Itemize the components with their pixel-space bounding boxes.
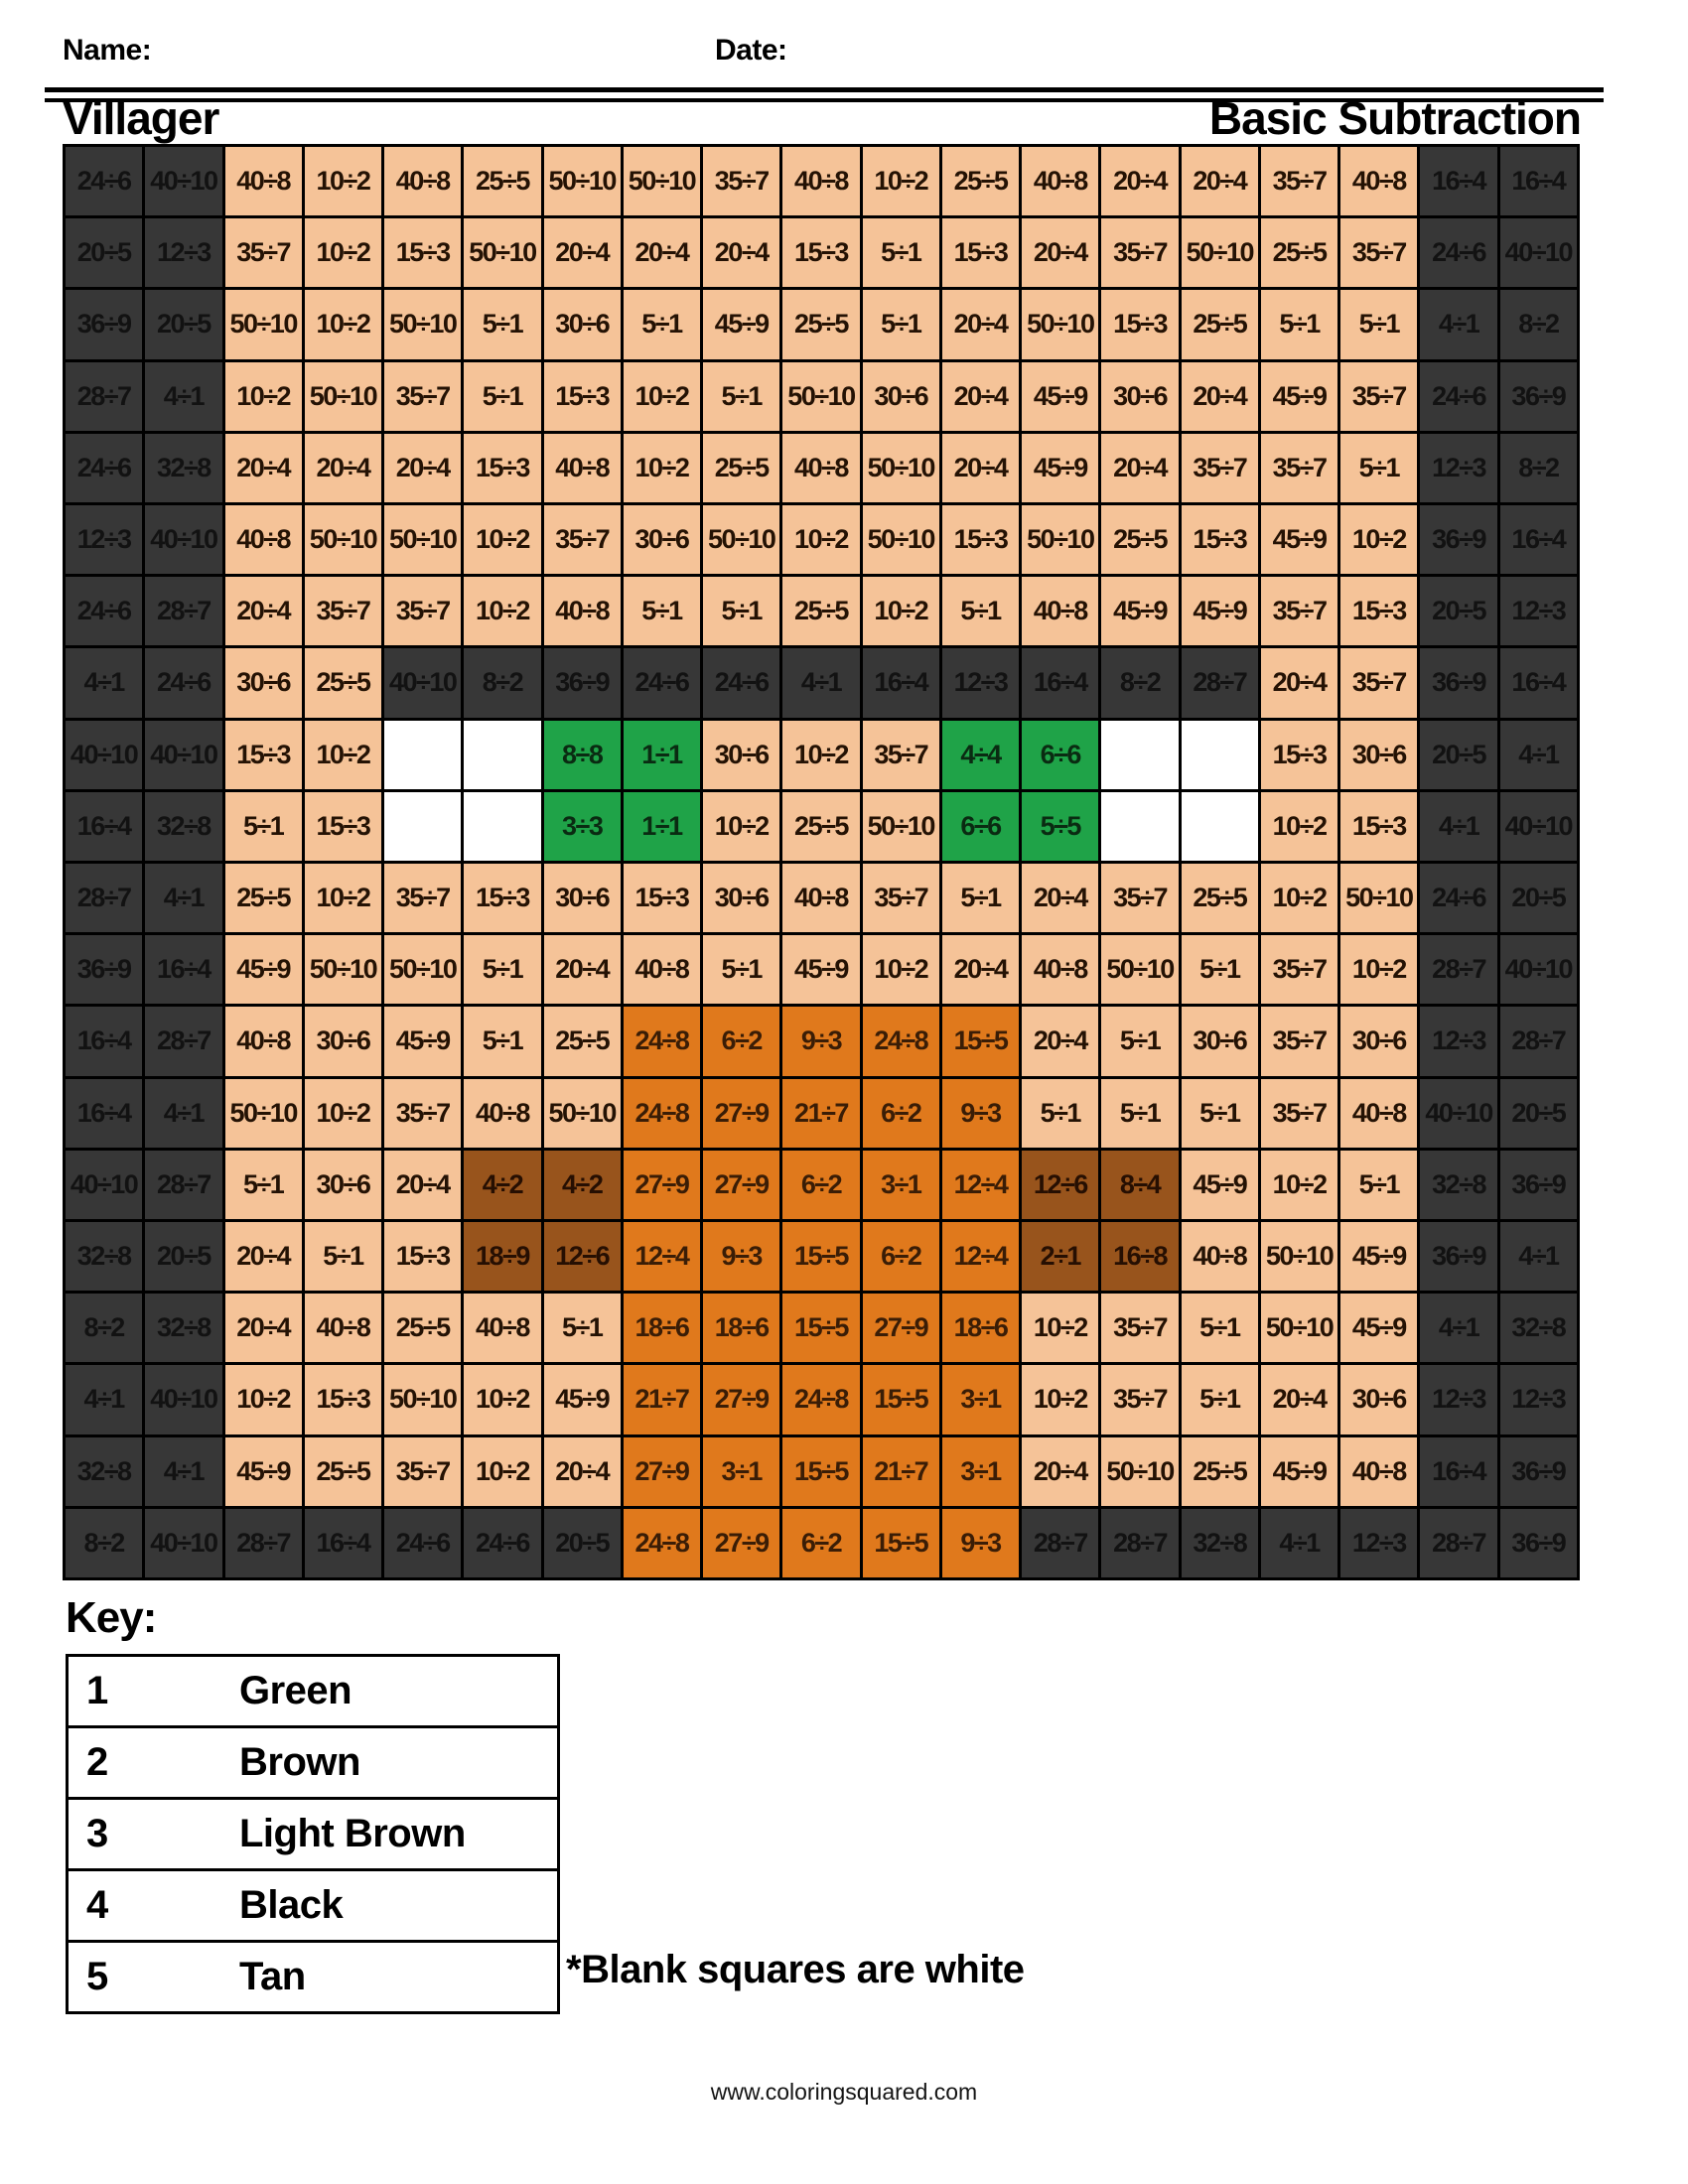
grid-cell: 15÷3: [464, 434, 540, 502]
footer-url: www.coloringsquared.com: [0, 2079, 1688, 2106]
grid-cell: 50÷10: [624, 147, 700, 215]
grid-cell: 10÷2: [464, 1437, 540, 1506]
grid-cell: 30÷6: [863, 362, 939, 431]
grid-cell: 20÷4: [1022, 1007, 1098, 1075]
grid-cell: 30÷6: [703, 864, 779, 932]
grid-cell: 18÷6: [942, 1294, 1019, 1362]
grid-cell: 30÷6: [624, 505, 700, 574]
grid-cell: 35÷7: [1101, 864, 1178, 932]
grid-cell: 30÷6: [1101, 362, 1178, 431]
grid-cell: 16÷4: [1420, 147, 1496, 215]
grid-cell: 16÷4: [66, 792, 142, 861]
grid-cell: 20÷4: [1101, 147, 1178, 215]
grid-cell: 30÷6: [1340, 1365, 1417, 1433]
grid-cell: 35÷7: [1261, 1079, 1337, 1148]
grid-cell: 45÷9: [1261, 505, 1337, 574]
grid-cell: 40÷8: [225, 147, 302, 215]
key-row: 2 Brown: [69, 1728, 557, 1800]
grid-cell: 8÷2: [464, 648, 540, 717]
grid-cell: 32÷8: [1500, 1294, 1577, 1362]
puzzle-grid: 24÷640÷1040÷810÷240÷825÷550÷1050÷1035÷74…: [63, 144, 1580, 1580]
grid-cell: 20÷4: [942, 935, 1019, 1004]
grid-cell: 30÷6: [305, 1151, 381, 1219]
grid-cell: 4÷2: [544, 1151, 621, 1219]
grid-cell: 40÷10: [66, 721, 142, 789]
grid-cell: 40÷8: [305, 1294, 381, 1362]
grid-cell: 16÷4: [1500, 147, 1577, 215]
grid-cell: 40÷10: [145, 721, 221, 789]
grid-cell: 40÷10: [145, 1509, 221, 1577]
grid-cell: 5÷1: [624, 290, 700, 358]
grid-cell: 35÷7: [863, 864, 939, 932]
grid-cell: 10÷2: [1340, 505, 1417, 574]
grid-cell: 5÷1: [703, 577, 779, 645]
grid-cell: 24÷8: [624, 1079, 700, 1148]
grid-cell: 20÷4: [225, 1294, 302, 1362]
key-number: 4: [69, 1883, 239, 1928]
grid-cell: 24÷8: [782, 1365, 859, 1433]
grid-cell: 15÷3: [464, 864, 540, 932]
grid-cell: 15÷3: [1101, 290, 1178, 358]
grid-cell: 25÷5: [782, 577, 859, 645]
grid-cell: 15÷3: [1261, 721, 1337, 789]
grid-cell: 16÷4: [1420, 1437, 1496, 1506]
grid-cell: 28÷7: [1420, 935, 1496, 1004]
grid-cell: 4÷1: [145, 1079, 221, 1148]
grid-cell: 30÷6: [1340, 1007, 1417, 1075]
grid-cell: 35÷7: [384, 1437, 461, 1506]
grid-cell: 12÷3: [1500, 1365, 1577, 1433]
grid-cell: 21÷7: [782, 1079, 859, 1148]
grid-cell: 5÷1: [942, 577, 1019, 645]
grid-cell: 40÷8: [1340, 1437, 1417, 1506]
grid-cell: [384, 792, 461, 861]
grid-cell: 45÷9: [1182, 1151, 1258, 1219]
grid-cell: 4÷2: [464, 1151, 540, 1219]
grid-cell: 5÷1: [1022, 1079, 1098, 1148]
grid-cell: 12÷6: [544, 1222, 621, 1291]
grid-cell: 24÷8: [624, 1007, 700, 1075]
grid-cell: 25÷5: [544, 1007, 621, 1075]
grid-cell: 15÷3: [305, 792, 381, 861]
grid-cell: 12÷4: [624, 1222, 700, 1291]
key-color-name: Brown: [239, 1740, 360, 1785]
grid-cell: 15÷3: [1340, 792, 1417, 861]
grid-cell: 3÷1: [863, 1151, 939, 1219]
grid-cell: 25÷5: [1182, 864, 1258, 932]
grid-cell: 36÷9: [1500, 362, 1577, 431]
grid-cell: 24÷6: [66, 434, 142, 502]
grid-cell: 25÷5: [703, 434, 779, 502]
grid-cell: 45÷9: [1340, 1222, 1417, 1291]
grid-cell: [1182, 721, 1258, 789]
grid-cell: 36÷9: [66, 935, 142, 1004]
grid-cell: 20÷4: [225, 577, 302, 645]
grid-cell: 10÷2: [305, 864, 381, 932]
grid-cell: 24÷6: [464, 1509, 540, 1577]
grid-cell: 28÷7: [145, 577, 221, 645]
grid-cell: 30÷6: [305, 1007, 381, 1075]
grid-cell: 10÷2: [624, 434, 700, 502]
grid-cell: 20÷4: [624, 218, 700, 287]
grid-cell: 20÷4: [703, 218, 779, 287]
grid-cell: 8÷4: [1101, 1151, 1178, 1219]
grid-cell: 1÷1: [624, 792, 700, 861]
grid-cell: 5÷1: [1182, 1294, 1258, 1362]
grid-cell: 15÷3: [305, 1365, 381, 1433]
grid-cell: 4÷1: [1420, 1294, 1496, 1362]
grid-cell: 40÷10: [66, 1151, 142, 1219]
grid-cell: 12÷4: [942, 1222, 1019, 1291]
grid-cell: 20÷4: [1022, 1437, 1098, 1506]
grid-cell: 15÷5: [782, 1222, 859, 1291]
grid-cell: 20÷4: [942, 290, 1019, 358]
grid-cell: 20÷5: [1420, 721, 1496, 789]
grid-cell: 50÷10: [1101, 1437, 1178, 1506]
grid-cell: 5÷1: [464, 1007, 540, 1075]
grid-cell: 45÷9: [1261, 1437, 1337, 1506]
key-number: 2: [69, 1740, 239, 1785]
grid-cell: 50÷10: [225, 1079, 302, 1148]
grid-cell: 5÷1: [305, 1222, 381, 1291]
grid-cell: 35÷7: [1101, 1365, 1178, 1433]
grid-cell: 4÷1: [1500, 1222, 1577, 1291]
grid-cell: 50÷10: [703, 505, 779, 574]
grid-cell: 10÷2: [225, 1365, 302, 1433]
grid-cell: 35÷7: [1261, 434, 1337, 502]
grid-cell: 35÷7: [384, 362, 461, 431]
grid-cell: 2÷1: [1022, 1222, 1098, 1291]
grid-cell: 40÷8: [624, 935, 700, 1004]
grid-cell: 21÷7: [863, 1437, 939, 1506]
grid-cell: 10÷2: [225, 362, 302, 431]
grid-cell: 6÷2: [782, 1509, 859, 1577]
key-table: 1 Green 2 Brown 3 Light Brown 4 Black 5 …: [66, 1654, 560, 2014]
grid-cell: 20÷4: [1022, 864, 1098, 932]
grid-cell: 50÷10: [305, 935, 381, 1004]
grid-cell: 1÷1: [624, 721, 700, 789]
grid-cell: 12÷3: [1420, 1365, 1496, 1433]
grid-cell: 35÷7: [1261, 1007, 1337, 1075]
grid-cell: 40÷8: [782, 434, 859, 502]
grid-cell: 35÷7: [1182, 434, 1258, 502]
grid-cell: 5÷1: [1182, 1365, 1258, 1433]
grid-cell: 4÷1: [145, 1437, 221, 1506]
grid-cell: 45÷9: [225, 935, 302, 1004]
grid-cell: 6÷2: [703, 1007, 779, 1075]
grid-cell: 50÷10: [863, 505, 939, 574]
grid-cell: 40÷10: [1500, 792, 1577, 861]
grid-cell: 30÷6: [544, 864, 621, 932]
grid-cell: 10÷2: [703, 792, 779, 861]
grid-cell: 35÷7: [1261, 935, 1337, 1004]
grid-cell: 45÷9: [1340, 1294, 1417, 1362]
grid-cell: 20÷4: [384, 434, 461, 502]
grid-cell: 24÷6: [66, 577, 142, 645]
grid-cell: 8÷8: [544, 721, 621, 789]
key-number: 5: [69, 1955, 239, 1999]
grid-cell: 10÷2: [305, 1079, 381, 1148]
grid-cell: 15÷3: [782, 218, 859, 287]
key-number: 1: [69, 1669, 239, 1713]
key-number: 3: [69, 1812, 239, 1856]
grid-cell: 15÷3: [384, 1222, 461, 1291]
grid-cell: [1101, 721, 1178, 789]
grid-cell: 10÷2: [464, 505, 540, 574]
date-label: Date:: [715, 34, 787, 68]
grid-cell: 5÷1: [464, 290, 540, 358]
grid-cell: 30÷6: [1340, 721, 1417, 789]
grid-cell: 9÷3: [942, 1079, 1019, 1148]
grid-cell: 40÷8: [1182, 1222, 1258, 1291]
grid-cell: 6÷2: [863, 1079, 939, 1148]
grid-cell: 10÷2: [464, 577, 540, 645]
grid-cell: 4÷1: [145, 864, 221, 932]
grid-cell: 28÷7: [145, 1151, 221, 1219]
grid-cell: 10÷2: [1022, 1365, 1098, 1433]
grid-cell: 45÷9: [782, 935, 859, 1004]
grid-cell: 50÷10: [863, 434, 939, 502]
grid-cell: 16÷8: [1101, 1222, 1178, 1291]
grid-cell: 50÷10: [1022, 290, 1098, 358]
grid-cell: 9÷3: [703, 1222, 779, 1291]
grid-cell: 40÷8: [544, 577, 621, 645]
grid-cell: 3÷3: [544, 792, 621, 861]
page-subtitle: Basic Subtraction: [1209, 95, 1581, 141]
grid-cell: 28÷7: [1182, 648, 1258, 717]
grid-cell: 20÷4: [1022, 218, 1098, 287]
grid-cell: 32÷8: [145, 1294, 221, 1362]
grid-cell: 10÷2: [1261, 792, 1337, 861]
grid-cell: 40÷8: [225, 505, 302, 574]
grid-cell: 35÷7: [1101, 1294, 1178, 1362]
grid-cell: 5÷1: [1340, 434, 1417, 502]
grid-cell: 8÷2: [1500, 434, 1577, 502]
grid-cell: 35÷7: [544, 505, 621, 574]
grid-cell: [1182, 792, 1258, 861]
grid-cell: 5÷1: [703, 362, 779, 431]
grid-cell: 4÷1: [66, 648, 142, 717]
grid-cell: 20÷5: [1420, 577, 1496, 645]
grid-cell: 21÷7: [624, 1365, 700, 1433]
grid-cell: 10÷2: [863, 935, 939, 1004]
grid-cell: 5÷1: [225, 1151, 302, 1219]
grid-cell: 10÷2: [464, 1365, 540, 1433]
grid-cell: 50÷10: [544, 147, 621, 215]
grid-cell: 4÷1: [782, 648, 859, 717]
grid-cell: 15÷5: [782, 1294, 859, 1362]
grid-cell: 5÷1: [1101, 1079, 1178, 1148]
grid-cell: 45÷9: [1022, 362, 1098, 431]
grid-cell: 20÷4: [1261, 1365, 1337, 1433]
grid-cell: 25÷5: [782, 290, 859, 358]
grid-cell: 20÷4: [942, 434, 1019, 502]
grid-cell: 40÷8: [384, 147, 461, 215]
grid-cell: 25÷5: [1101, 505, 1178, 574]
grid-cell: 15÷3: [942, 505, 1019, 574]
grid-cell: 10÷2: [863, 147, 939, 215]
grid-cell: 20÷4: [1101, 434, 1178, 502]
grid-cell: 18÷9: [464, 1222, 540, 1291]
grid-cell: 9÷3: [782, 1007, 859, 1075]
grid-cell: 32÷8: [66, 1222, 142, 1291]
grid-cell: 36÷9: [1500, 1151, 1577, 1219]
grid-cell: [384, 721, 461, 789]
grid-cell: 5÷1: [1101, 1007, 1178, 1075]
grid-cell: 20÷4: [225, 1222, 302, 1291]
grid-cell: 5÷1: [1340, 1151, 1417, 1219]
grid-cell: 25÷5: [305, 648, 381, 717]
grid-cell: 5÷1: [1261, 290, 1337, 358]
key-row: 5 Tan: [69, 1943, 557, 2011]
grid-cell: 4÷1: [1500, 721, 1577, 789]
grid-cell: 5÷1: [464, 362, 540, 431]
grid-cell: 3÷1: [942, 1365, 1019, 1433]
grid-cell: 28÷7: [66, 864, 142, 932]
grid-cell: 12÷3: [145, 218, 221, 287]
grid-cell: 50÷10: [384, 1365, 461, 1433]
grid-cell: 20÷5: [1500, 1079, 1577, 1148]
grid-cell: 35÷7: [225, 218, 302, 287]
grid-cell: 50÷10: [1022, 505, 1098, 574]
grid-cell: 40÷8: [464, 1079, 540, 1148]
grid-cell: 50÷10: [1182, 218, 1258, 287]
grid-cell: 27÷9: [863, 1294, 939, 1362]
grid-cell: 4÷1: [1261, 1509, 1337, 1577]
grid-cell: 40÷8: [1340, 1079, 1417, 1148]
grid-cell: 16÷4: [863, 648, 939, 717]
grid-cell: 27÷9: [703, 1079, 779, 1148]
grid-cell: 40÷8: [225, 1007, 302, 1075]
grid-cell: 10÷2: [1261, 864, 1337, 932]
grid-cell: 25÷5: [305, 1437, 381, 1506]
grid-cell: 36÷9: [1420, 1222, 1496, 1291]
grid-cell: 10÷2: [305, 218, 381, 287]
grid-cell: 28÷7: [1022, 1509, 1098, 1577]
grid-cell: 45÷9: [1022, 434, 1098, 502]
grid-cell: 20÷4: [544, 935, 621, 1004]
grid-cell: 15÷3: [1182, 505, 1258, 574]
grid-cell: 32÷8: [145, 792, 221, 861]
grid-cell: 30÷6: [1182, 1007, 1258, 1075]
grid-cell: 12÷6: [1022, 1151, 1098, 1219]
grid-cell: 45÷9: [703, 290, 779, 358]
grid-cell: 10÷2: [305, 147, 381, 215]
grid-cell: 45÷9: [1261, 362, 1337, 431]
grid-cell: 40÷8: [464, 1294, 540, 1362]
grid-cell: 8÷2: [1101, 648, 1178, 717]
grid-cell: 18÷6: [624, 1294, 700, 1362]
grid-cell: 35÷7: [1261, 147, 1337, 215]
page-title: Villager: [63, 95, 218, 141]
grid-cell: 40÷8: [782, 147, 859, 215]
grid-cell: 10÷2: [1022, 1294, 1098, 1362]
grid-cell: 35÷7: [384, 864, 461, 932]
grid-cell: 6÷6: [1022, 721, 1098, 789]
grid-cell: 50÷10: [782, 362, 859, 431]
grid-cell: 50÷10: [1261, 1222, 1337, 1291]
grid-cell: 35÷7: [863, 721, 939, 789]
grid-cell: 15÷3: [1340, 577, 1417, 645]
grid-cell: 50÷10: [225, 290, 302, 358]
grid-cell: 40÷8: [782, 864, 859, 932]
grid-cell: 35÷7: [1340, 218, 1417, 287]
grid-cell: 15÷3: [942, 218, 1019, 287]
grid-cell: 24÷6: [703, 648, 779, 717]
grid-cell: 35÷7: [1340, 362, 1417, 431]
grid-cell: 16÷4: [1022, 648, 1098, 717]
grid-cell: 24÷6: [384, 1509, 461, 1577]
grid-cell: 32÷8: [66, 1437, 142, 1506]
grid-cell: 30÷6: [703, 721, 779, 789]
grid-cell: 10÷2: [305, 290, 381, 358]
grid-cell: 4÷1: [145, 362, 221, 431]
grid-cell: 28÷7: [66, 362, 142, 431]
grid-cell: 27÷9: [624, 1151, 700, 1219]
grid-cell: 5÷1: [1340, 290, 1417, 358]
grid-cell: 27÷9: [703, 1365, 779, 1433]
grid-cell: 27÷9: [624, 1437, 700, 1506]
key-color-name: Black: [239, 1883, 343, 1928]
grid-cell: 20÷4: [1182, 147, 1258, 215]
grid-cell: 24÷8: [624, 1509, 700, 1577]
grid-cell: 15÷5: [863, 1365, 939, 1433]
grid-cell: 12÷3: [1500, 577, 1577, 645]
grid-cell: 9÷3: [942, 1509, 1019, 1577]
grid-cell: 15÷5: [782, 1437, 859, 1506]
grid-cell: 12÷4: [942, 1151, 1019, 1219]
grid-cell: 18÷6: [703, 1294, 779, 1362]
key-row: 3 Light Brown: [69, 1800, 557, 1871]
grid-cell: 28÷7: [1420, 1509, 1496, 1577]
grid-cell: 24÷6: [624, 648, 700, 717]
key-color-name: Tan: [239, 1955, 306, 1999]
grid-cell: 25÷5: [225, 864, 302, 932]
grid-cell: 16÷4: [1500, 505, 1577, 574]
grid-cell: 25÷5: [942, 147, 1019, 215]
grid-cell: 20÷5: [145, 290, 221, 358]
grid-cell: 20÷5: [145, 1222, 221, 1291]
grid-cell: 20÷4: [544, 218, 621, 287]
grid-cell: 5÷1: [942, 864, 1019, 932]
grid-cell: 25÷5: [464, 147, 540, 215]
grid-cell: 24÷6: [1420, 864, 1496, 932]
grid-cell: 15÷3: [384, 218, 461, 287]
grid-cell: 35÷7: [305, 577, 381, 645]
grid-cell: 25÷5: [1182, 1437, 1258, 1506]
grid-cell: 10÷2: [863, 577, 939, 645]
grid-cell: 50÷10: [1261, 1294, 1337, 1362]
blank-squares-note: *Blank squares are white: [566, 1948, 1025, 1992]
grid-cell: 15÷5: [942, 1007, 1019, 1075]
grid-cell: 20÷4: [225, 434, 302, 502]
grid-cell: 50÷10: [464, 218, 540, 287]
grid-cell: 10÷2: [1340, 935, 1417, 1004]
grid-cell: 50÷10: [1101, 935, 1178, 1004]
grid-cell: 35÷7: [1261, 577, 1337, 645]
grid-cell: 25÷5: [1261, 218, 1337, 287]
grid-cell: 25÷5: [1182, 290, 1258, 358]
grid-cell: 5÷1: [863, 290, 939, 358]
grid-cell: 40÷10: [145, 1365, 221, 1433]
grid-cell: 35÷7: [1101, 218, 1178, 287]
grid-cell: 12÷3: [66, 505, 142, 574]
grid-cell: 20÷4: [384, 1151, 461, 1219]
grid-cell: 5÷1: [1182, 935, 1258, 1004]
grid-cell: 50÷10: [305, 362, 381, 431]
grid-cell: 10÷2: [1261, 1151, 1337, 1219]
key-color-name: Light Brown: [239, 1812, 466, 1856]
